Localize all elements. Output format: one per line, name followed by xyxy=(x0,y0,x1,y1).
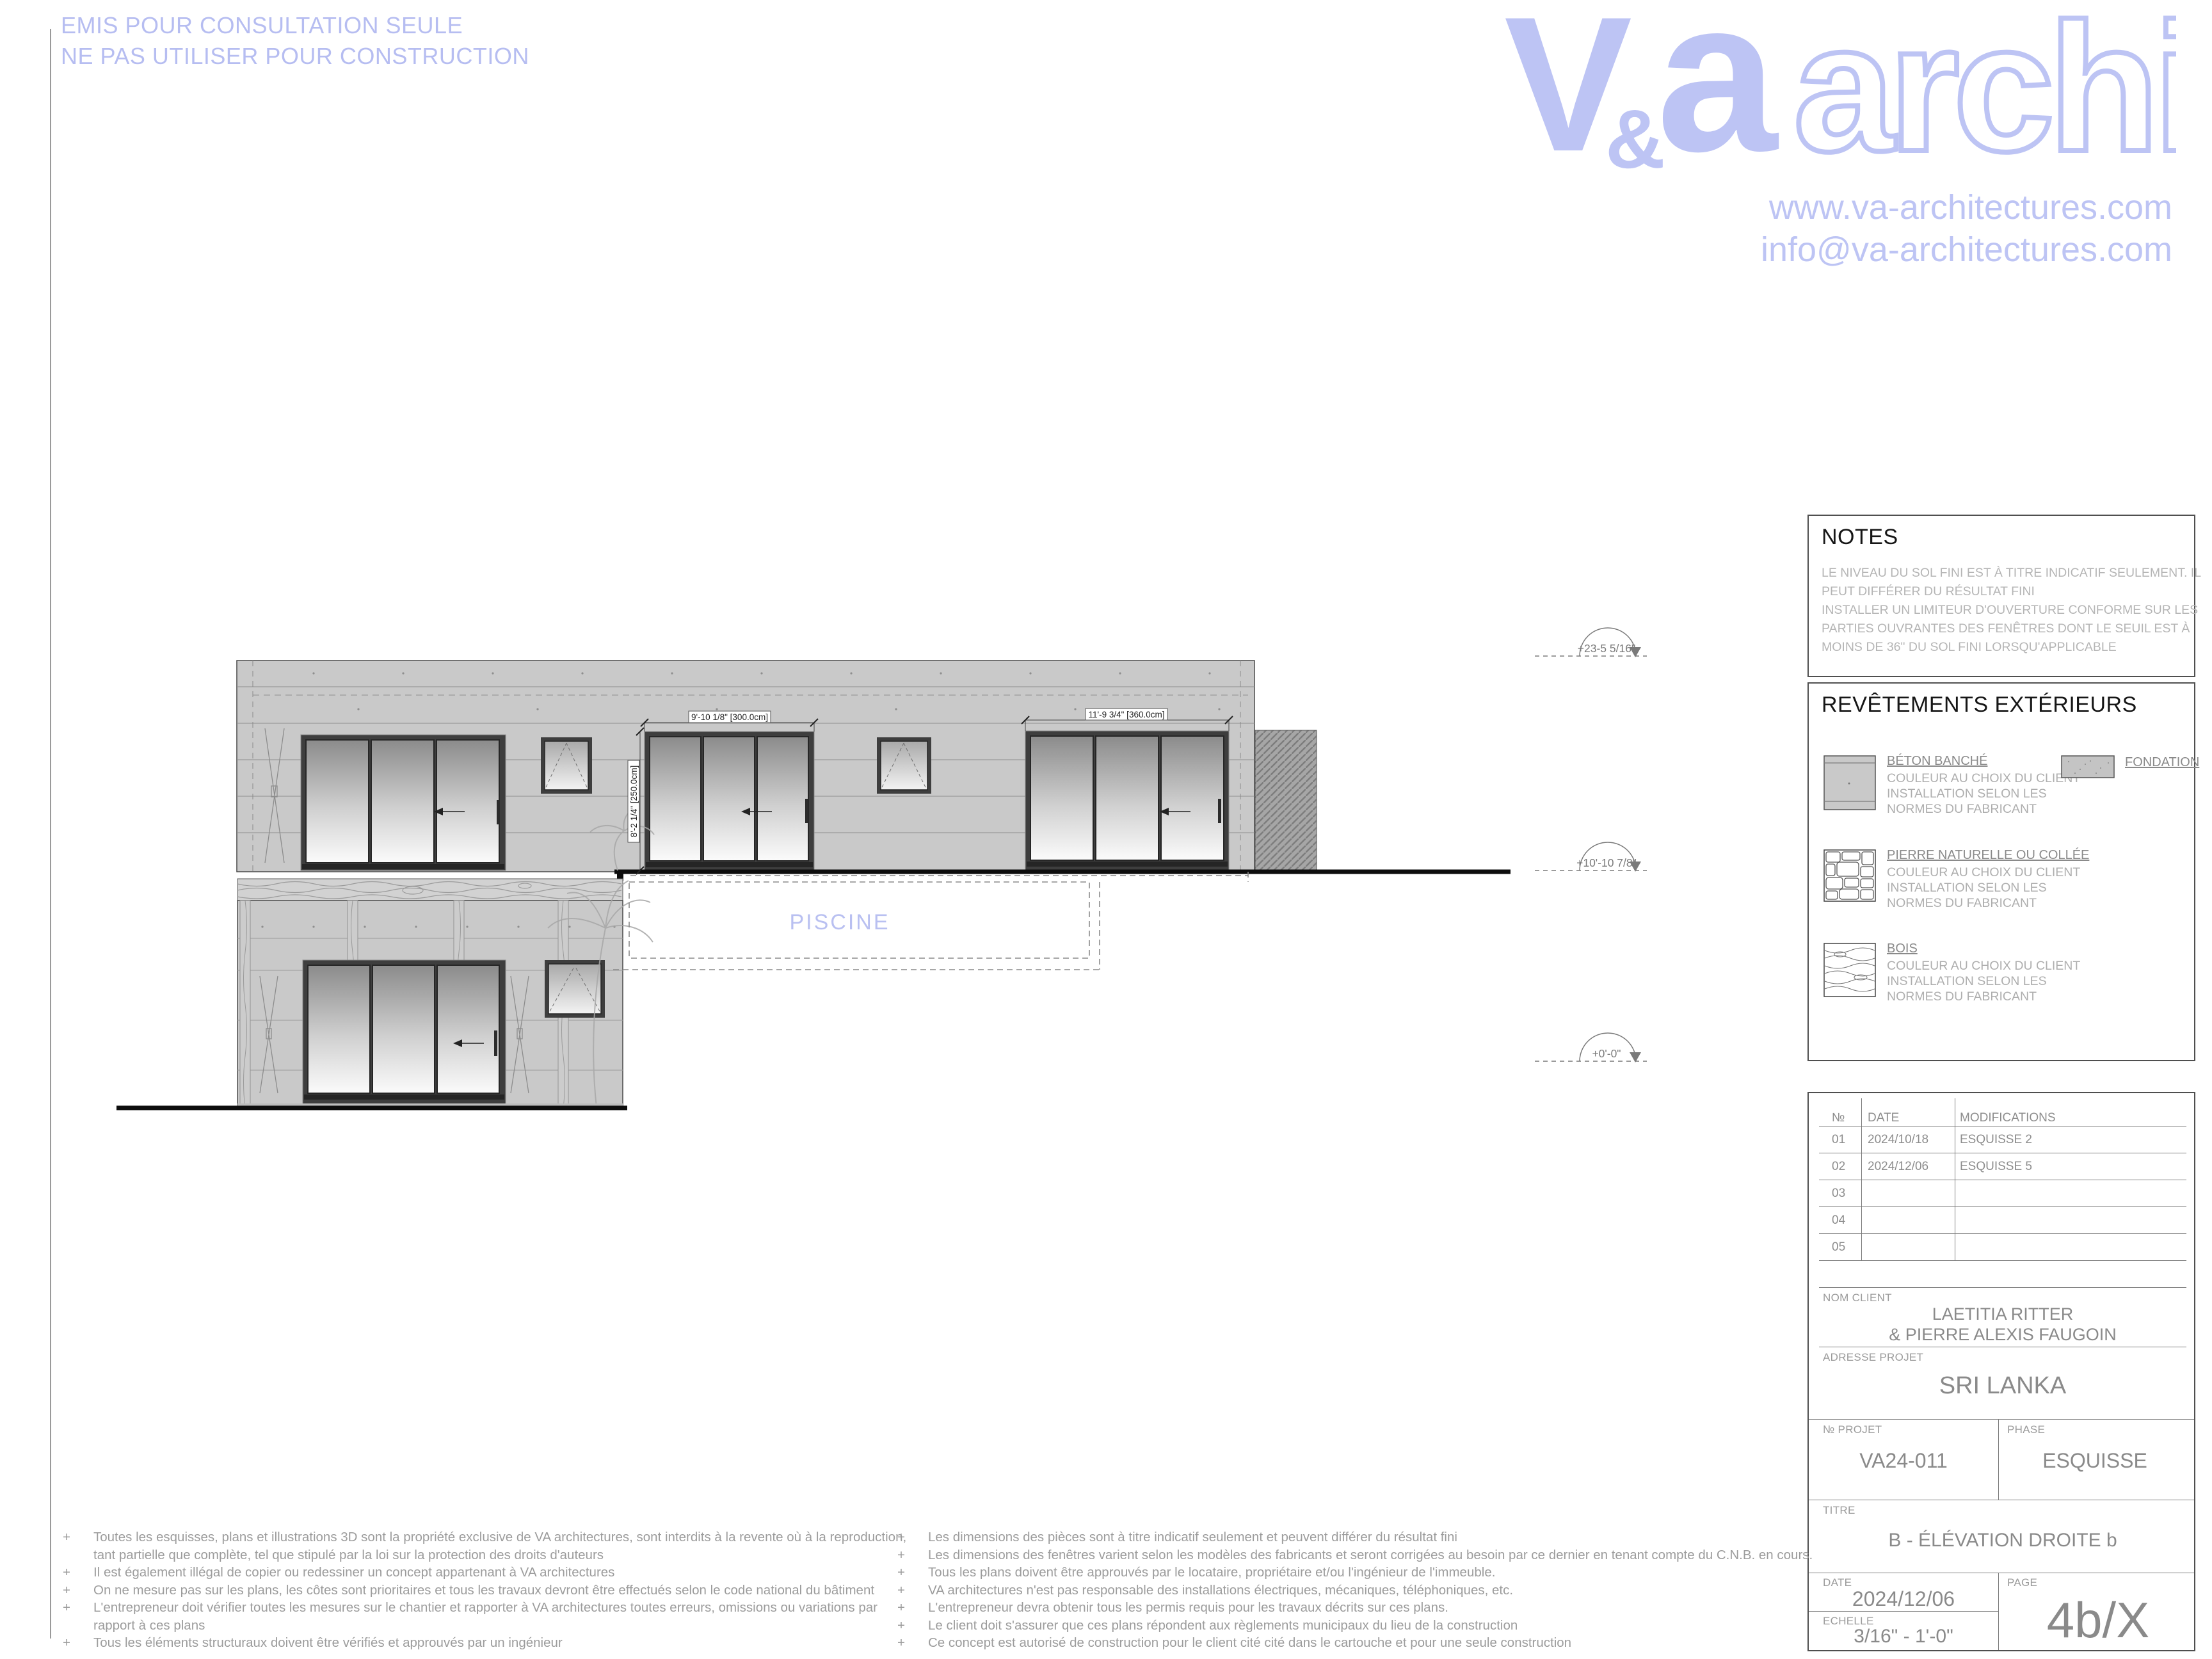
material-desc: COULEUR AU CHOIX DU CLIENT xyxy=(1887,865,2080,880)
disclaimer-item: +Ce concept est autorisé de construction… xyxy=(897,1634,1825,1652)
elevation-drawing: PISCINE 9'-10 1/8" [300.0cm] 11'-9 3/4" … xyxy=(38,627,1703,1152)
disclaimer-text: L'entrepreneur doit vérifier toutes les … xyxy=(93,1599,914,1634)
phase-label: PHASE xyxy=(2007,1423,2045,1436)
level-marker-upper-floor: +10'-10 7/8" xyxy=(1535,842,1647,872)
material-desc: INSTALLATION SELON LES xyxy=(1887,881,2047,895)
bullet-plus: + xyxy=(897,1634,928,1652)
disclaimer-text: L'entrepreneur devra obtenir tous les pe… xyxy=(928,1599,1825,1617)
note-line: PEUT DIFFÉRER DU RÉSULTAT FINI xyxy=(1822,584,2035,599)
project-address: SRI LANKA xyxy=(1939,1372,2067,1400)
logo-archi-outline: archi xyxy=(1793,6,2176,179)
disclaimer-text: Toutes les esquisses, plans et illustrat… xyxy=(93,1528,914,1564)
disclaimer-item: +Tous les éléments structuraux doivent ê… xyxy=(63,1634,914,1652)
bois-swatch xyxy=(1823,943,1876,997)
sliding-door-lower xyxy=(303,960,506,1105)
disclaimer-item: +Les dimensions des pièces sont à titre … xyxy=(897,1528,1825,1546)
level-label: +23-5 5/16" xyxy=(1578,642,1635,655)
dimension-label: 11'-9 3/4" [360.0cm] xyxy=(1089,710,1165,719)
note-line: PARTIES OUVRANTES DES FENÊTRES DONT LE S… xyxy=(1822,621,2190,636)
bullet-plus: + xyxy=(897,1599,928,1617)
project-no: VA24-011 xyxy=(1859,1449,1948,1473)
page-number: 4b/X xyxy=(2047,1591,2149,1649)
va-archi-logo: V & a archi xyxy=(1504,6,2176,179)
rev-row-date: 2024/12/06 xyxy=(1868,1160,1928,1174)
date-value: 2024/12/06 xyxy=(1852,1587,1955,1611)
scale-value: 3/16" - 1'-0" xyxy=(1854,1626,1953,1647)
level-marker-ground: +0'-0" xyxy=(1535,1033,1647,1062)
dimension-label: 8'-2 1/4" [250.0cm] xyxy=(629,765,639,837)
note-line: INSTALLER UN LIMITEUR D'OUVERTURE CONFOR… xyxy=(1822,603,2198,618)
material-desc: INSTALLATION SELON LES xyxy=(1887,787,2047,801)
level-label: +0'-0" xyxy=(1592,1047,1621,1060)
client-name-1: LAETITIA RITTER xyxy=(1932,1304,2074,1324)
material-desc: COULEUR AU CHOIX DU CLIENT xyxy=(1887,771,2080,786)
note-line: LE NIVEAU DU SOL FINI EST À TITRE INDICA… xyxy=(1822,566,2201,581)
rev-row-mod: ESQUISSE 5 xyxy=(1960,1160,2032,1174)
material-desc: NORMES DU FABRICANT xyxy=(1887,990,2037,1004)
title-block: № DATE MODIFICATIONS 01 2024/10/18 ESQUI… xyxy=(1807,1092,2195,1651)
materials-panel: REVÊTEMENTS EXTÉRIEURS BÉTON BANCHÉ COUL… xyxy=(1807,682,2195,1061)
disclaimer-item: +Toutes les esquisses, plans et illustra… xyxy=(63,1528,914,1564)
sliding-door-upper-center xyxy=(645,732,814,870)
bullet-plus: + xyxy=(897,1564,928,1582)
rev-row-mod: ESQUISSE 2 xyxy=(1960,1133,2032,1147)
project-no-label: № PROJET xyxy=(1823,1423,1882,1436)
pool-label: PISCINE xyxy=(789,910,890,934)
level-label: +10'-10 7/8" xyxy=(1576,856,1637,869)
rev-row-no: 01 xyxy=(1832,1133,1845,1147)
material-desc: INSTALLATION SELON LES xyxy=(1887,974,2047,989)
disclaimer-text: Le client doit s'assurer que ces plans r… xyxy=(928,1617,1825,1635)
bullet-plus: + xyxy=(63,1528,93,1564)
drawing-title: B - ÉLÉVATION DROITE b xyxy=(1888,1530,2117,1551)
bullet-plus: + xyxy=(63,1599,93,1634)
note-line: MOINS DE 36" DU SOL FINI LORSQU'APPLICAB… xyxy=(1822,640,2117,655)
disclaimer-item: +VA architectures n'est pas responsable … xyxy=(897,1582,1825,1599)
small-window-upper-right xyxy=(877,737,931,794)
date-label: DATE xyxy=(1823,1576,1852,1589)
fondation-swatch xyxy=(2061,755,2115,778)
disclaimer-text: Tous les éléments structuraux doivent êt… xyxy=(93,1634,914,1652)
notes-panel: NOTES LE NIVEAU DU SOL FINI EST À TITRE … xyxy=(1807,515,2195,677)
bullet-plus: + xyxy=(897,1528,928,1546)
disclaimer-text: Il est également illégal de copier ou re… xyxy=(93,1564,914,1582)
material-desc: NORMES DU FABRICANT xyxy=(1887,802,2037,817)
disclaimer-column-left: +Toutes les esquisses, plans et illustra… xyxy=(63,1528,914,1652)
bullet-plus: + xyxy=(897,1546,928,1564)
pierre-swatch xyxy=(1823,849,1876,902)
disclaimer-column-right: +Les dimensions des pièces sont à titre … xyxy=(897,1528,1825,1652)
dimension-label: 9'-10 1/8" [300.0cm] xyxy=(691,712,768,722)
bullet-plus: + xyxy=(63,1564,93,1582)
bullet-plus: + xyxy=(897,1617,928,1635)
page-label: PAGE xyxy=(2007,1576,2037,1589)
rev-row-no: 03 xyxy=(1832,1187,1845,1201)
bullet-plus: + xyxy=(63,1582,93,1599)
rev-row-no: 05 xyxy=(1832,1240,1845,1254)
consultation-stamp: EMIS POUR CONSULTATION SEULE NE PAS UTIL… xyxy=(61,10,529,71)
material-name: PIERRE NATURELLE OU COLLÉE xyxy=(1887,848,2089,863)
sliding-door-upper-left xyxy=(301,735,506,870)
beton-banche-swatch xyxy=(1823,755,1876,810)
contact-block: www.va-architectures.com info@va-archite… xyxy=(1761,187,2172,271)
rev-row-date: 2024/10/18 xyxy=(1868,1133,1928,1147)
rev-col-date: DATE xyxy=(1868,1111,1899,1125)
rev-col-mod: MODIFICATIONS xyxy=(1960,1111,2056,1125)
rev-row-no: 04 xyxy=(1832,1214,1845,1228)
disclaimer-item: +Le client doit s'assurer que ces plans … xyxy=(897,1617,1825,1635)
disclaimer-text: Tous les plans doivent être approuvés pa… xyxy=(928,1564,1825,1582)
rev-col-no: № xyxy=(1832,1111,1845,1125)
disclaimer-item: +Les dimensions des fenêtres varient sel… xyxy=(897,1546,1825,1564)
material-name: BOIS xyxy=(1887,942,1918,956)
small-window-upper-left xyxy=(541,737,592,794)
sliding-door-upper-right xyxy=(1025,731,1229,870)
notes-title: NOTES xyxy=(1822,525,1898,550)
rev-row-no: 02 xyxy=(1832,1160,1845,1174)
client-name-2: & PIERRE ALEXIS FAUGOIN xyxy=(1889,1325,2117,1345)
materials-title: REVÊTEMENTS EXTÉRIEURS xyxy=(1822,693,2137,717)
website-url: www.va-architectures.com xyxy=(1761,187,2172,229)
bullet-plus: + xyxy=(63,1634,93,1652)
disclaimer-item: +Tous les plans doivent être approuvés p… xyxy=(897,1564,1825,1582)
drawing-sheet: EMIS POUR CONSULTATION SEULE NE PAS UTIL… xyxy=(0,0,2212,1659)
phase-value: ESQUISSE xyxy=(2042,1449,2147,1473)
section-hatch-wall xyxy=(1255,730,1317,871)
email-address: info@va-architectures.com xyxy=(1761,229,2172,271)
disclaimer-text: Ce concept est autorisé de construction … xyxy=(928,1634,1825,1652)
address-label: ADRESSE PROJET xyxy=(1823,1351,1923,1364)
disclaimer-item: +L'entrepreneur devra obtenir tous les p… xyxy=(897,1599,1825,1617)
disclaimer-item: +L'entrepreneur doit vérifier toutes les… xyxy=(63,1599,914,1634)
level-marker-roof: +23-5 5/16" xyxy=(1535,628,1647,657)
client-label: NOM CLIENT xyxy=(1823,1292,1892,1304)
fondation-label: FONDATION xyxy=(2125,755,2199,770)
disclaimer-text: On ne mesure pas sur les plans, les côte… xyxy=(93,1582,914,1599)
logo-letter-a: a xyxy=(1656,6,1779,179)
disclaimer-text: Les dimensions des fenêtres varient selo… xyxy=(928,1546,1825,1564)
disclaimer-item: +Il est également illégal de copier ou r… xyxy=(63,1564,914,1582)
material-desc: NORMES DU FABRICANT xyxy=(1887,896,2037,911)
material-desc: COULEUR AU CHOIX DU CLIENT xyxy=(1887,959,2080,974)
stamp-line-2: NE PAS UTILISER POUR CONSTRUCTION xyxy=(61,41,529,72)
pool-outline xyxy=(613,872,1248,970)
material-name: BÉTON BANCHÉ xyxy=(1887,754,1987,769)
title-label: TITRE xyxy=(1823,1504,1855,1517)
disclaimer-item: +On ne mesure pas sur les plans, les côt… xyxy=(63,1582,914,1599)
bullet-plus: + xyxy=(897,1582,928,1599)
stamp-line-1: EMIS POUR CONSULTATION SEULE xyxy=(61,10,529,41)
disclaimer-text: Les dimensions des pièces sont à titre i… xyxy=(928,1528,1825,1546)
disclaimer-text: VA architectures n'est pas responsable d… xyxy=(928,1582,1825,1599)
